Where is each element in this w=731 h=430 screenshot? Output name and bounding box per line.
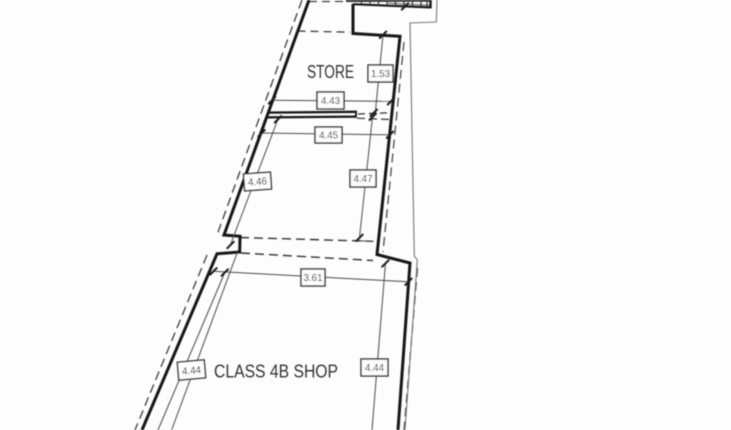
svg-text:4.44: 4.44 [182, 364, 202, 378]
svg-text:4.43: 4.43 [321, 95, 340, 107]
svg-text:4.46: 4.46 [248, 175, 268, 188]
svg-text:CLASS 4B SHOP: CLASS 4B SHOP [214, 362, 338, 382]
svg-text:3.61: 3.61 [304, 272, 323, 284]
svg-text:1.53: 1.53 [371, 68, 390, 80]
svg-text:STORE: STORE [307, 62, 354, 82]
svg-text:4.47: 4.47 [354, 173, 373, 185]
svg-text:4.45: 4.45 [319, 130, 338, 142]
svg-text:4.44: 4.44 [365, 362, 384, 374]
